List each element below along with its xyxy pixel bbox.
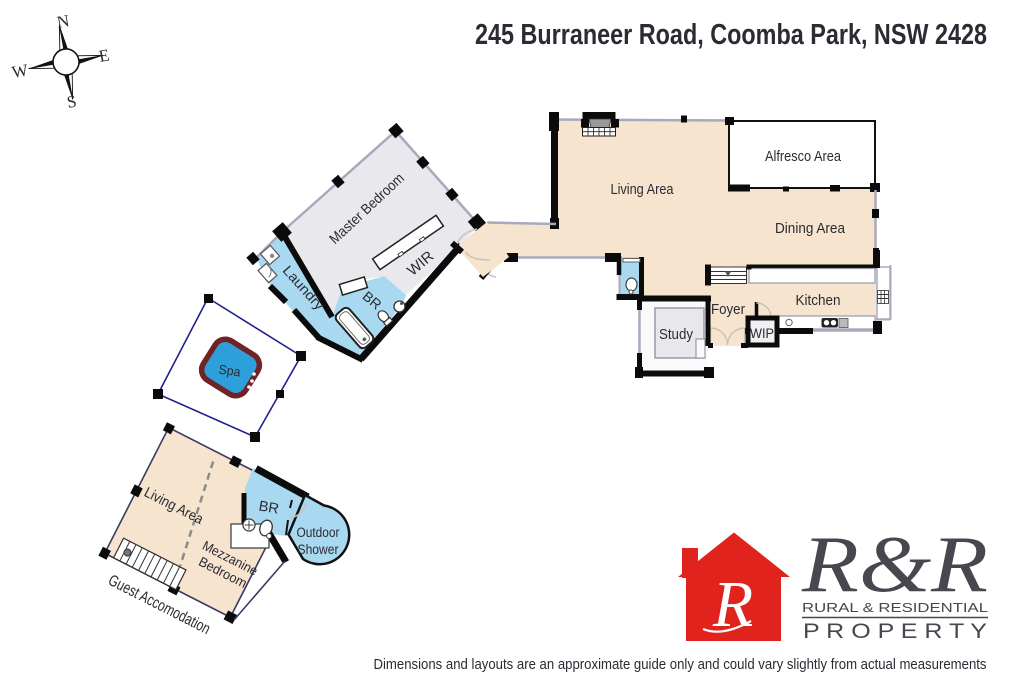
svg-text:Foyer: Foyer bbox=[711, 301, 745, 318]
svg-text:Dining Area: Dining Area bbox=[775, 220, 846, 237]
svg-text:Alfresco Area: Alfresco Area bbox=[765, 148, 842, 165]
svg-text:245 Burraneer Road, Coomba Par: 245 Burraneer Road, Coomba Park, NSW 242… bbox=[475, 19, 987, 51]
svg-text:Outdoor: Outdoor bbox=[297, 525, 340, 540]
svg-text:Study: Study bbox=[659, 326, 693, 343]
svg-text:Kitchen: Kitchen bbox=[796, 292, 841, 309]
svg-text:RURAL & RESIDENTIAL: RURAL & RESIDENTIAL bbox=[802, 600, 988, 615]
svg-text:R&R: R&R bbox=[801, 521, 988, 609]
svg-text:P R O P E R T Y: P R O P E R T Y bbox=[803, 620, 987, 643]
svg-text:Living Area: Living Area bbox=[611, 181, 675, 198]
svg-text:Spa: Spa bbox=[218, 362, 243, 380]
svg-text:WIP: WIP bbox=[750, 325, 774, 341]
svg-text:Dimensions and layouts are an: Dimensions and layouts are an approximat… bbox=[374, 657, 987, 673]
svg-text:Shower: Shower bbox=[298, 542, 339, 557]
